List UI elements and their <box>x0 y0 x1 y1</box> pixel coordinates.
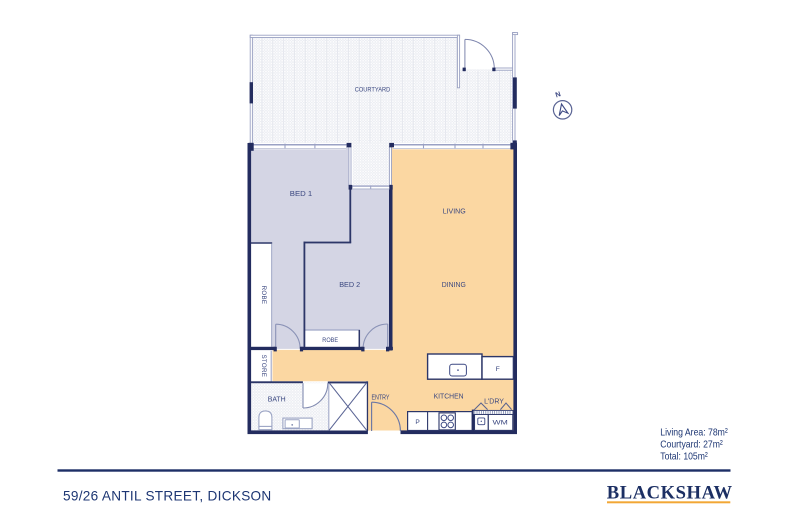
svg-text:Courtyard: 27m²: Courtyard: 27m² <box>660 439 723 450</box>
svg-text:DINING: DINING <box>442 280 466 289</box>
svg-text:BATH: BATH <box>268 394 286 403</box>
svg-text:BLACKSHAW: BLACKSHAW <box>607 483 733 504</box>
svg-text:L'DRY: L'DRY <box>484 398 504 405</box>
svg-text:F: F <box>496 366 500 373</box>
svg-text:KITCHEN: KITCHEN <box>434 391 464 400</box>
svg-text:59/26 ANTIL STREET, DICKSON: 59/26 ANTIL STREET, DICKSON <box>63 489 272 504</box>
svg-text:Living Area: 78m²: Living Area: 78m² <box>660 427 728 438</box>
svg-text:P: P <box>415 419 420 426</box>
svg-text:STORE: STORE <box>260 354 267 377</box>
svg-text:LIVING: LIVING <box>443 206 466 215</box>
svg-text:Total: 105m²: Total: 105m² <box>660 451 708 462</box>
svg-text:BED 2: BED 2 <box>339 280 360 289</box>
svg-text:ENTRY: ENTRY <box>372 395 390 402</box>
svg-text:ROBE: ROBE <box>322 337 338 344</box>
svg-text:WM: WM <box>493 419 508 426</box>
svg-text:ROBE: ROBE <box>260 286 267 305</box>
svg-text:COURTYARD: COURTYARD <box>355 87 391 94</box>
svg-text:BED 1: BED 1 <box>290 189 313 198</box>
